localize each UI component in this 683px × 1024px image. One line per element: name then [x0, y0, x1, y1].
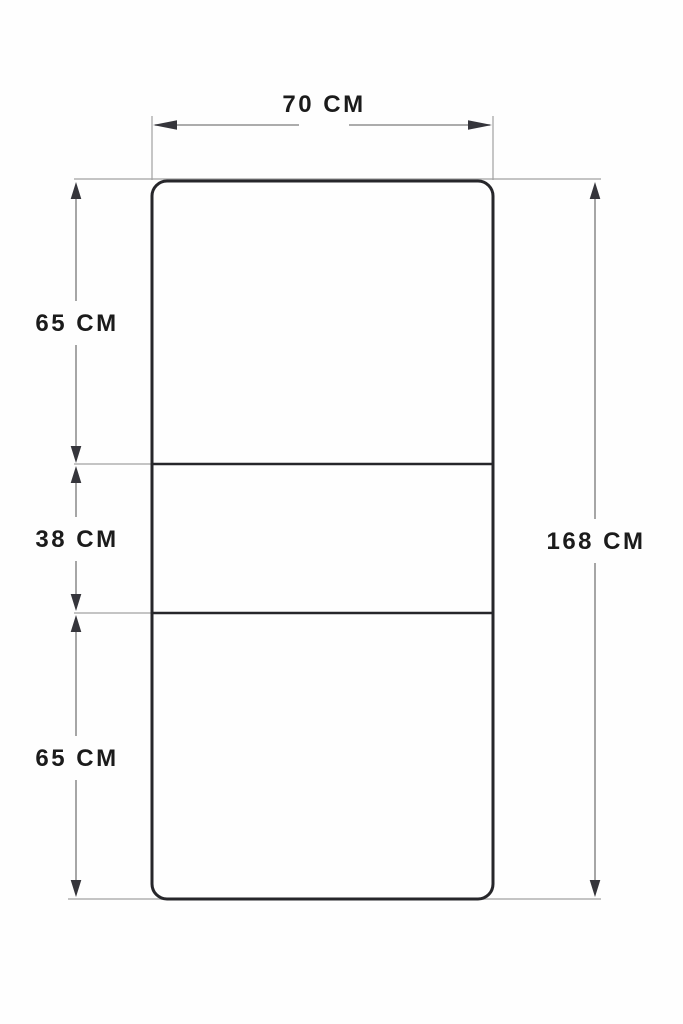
arrow-right-icon [468, 120, 492, 130]
total-height-label: 168 CM [546, 528, 645, 555]
arrow-up-icon [590, 182, 601, 199]
width-label: 70 CM [282, 91, 365, 118]
arrow-down-icon [71, 594, 82, 611]
dimension-diagram: 70 CM 65 CM 38 CM 65 CM [0, 0, 683, 1024]
section1-dimension: 65 CM [35, 182, 118, 463]
total-height-dimension: 168 CM [546, 182, 645, 897]
section3-dimension: 65 CM [35, 615, 118, 897]
arrow-down-icon [71, 446, 82, 463]
arrow-up-icon [71, 466, 82, 483]
arrow-up-icon [71, 182, 82, 199]
section2-dimension: 38 CM [35, 466, 118, 611]
arrow-down-icon [71, 880, 82, 897]
section3-label: 65 CM [35, 745, 118, 772]
panel-outline [152, 181, 493, 899]
width-dimension: 70 CM [153, 91, 492, 130]
arrow-left-icon [153, 120, 177, 130]
section1-label: 65 CM [35, 310, 118, 337]
arrow-up-icon [71, 615, 82, 632]
arrow-down-icon [590, 880, 601, 897]
diagram-svg: 70 CM 65 CM 38 CM 65 CM [0, 0, 683, 1024]
section2-label: 38 CM [35, 526, 118, 553]
